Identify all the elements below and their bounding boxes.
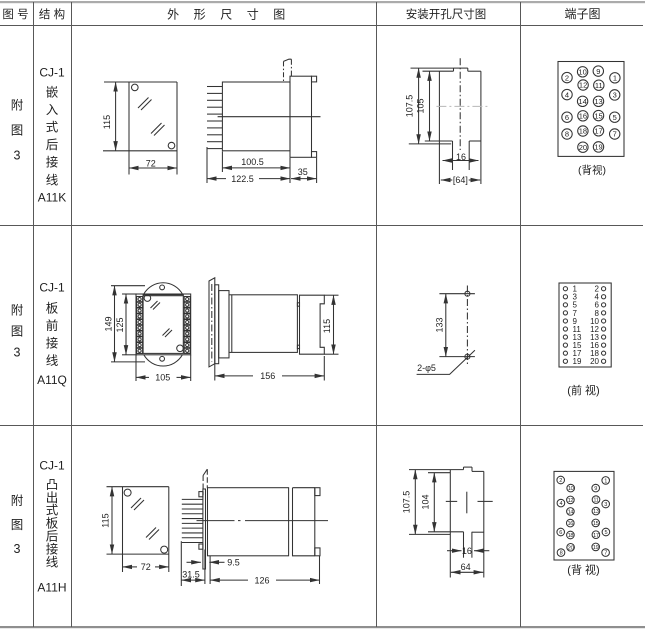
svg-text:3: 3: [14, 345, 21, 359]
svg-text:CJ-1: CJ-1: [39, 281, 65, 295]
svg-text:附: 附: [11, 303, 24, 317]
svg-text:115: 115: [322, 319, 332, 333]
svg-text:A11K: A11K: [38, 191, 66, 205]
svg-text:19: 19: [593, 545, 599, 551]
svg-text:图: 图: [11, 518, 24, 532]
svg-text:17: 17: [593, 533, 599, 539]
svg-text:3: 3: [604, 502, 607, 508]
svg-text:附: 附: [11, 98, 24, 112]
svg-text:19: 19: [594, 143, 602, 152]
svg-text:式: 式: [46, 504, 59, 518]
svg-text:图: 图: [11, 123, 24, 137]
svg-text:线: 线: [46, 555, 59, 569]
svg-text:104: 104: [421, 494, 431, 509]
svg-text:图 号: 图 号: [2, 8, 28, 21]
svg-text:3: 3: [613, 91, 617, 100]
svg-text:31.5: 31.5: [182, 570, 200, 580]
svg-text:后: 后: [46, 138, 59, 152]
svg-text:1: 1: [604, 479, 607, 485]
svg-text:1: 1: [613, 74, 617, 83]
svg-text:接: 接: [46, 155, 59, 170]
svg-text:15: 15: [593, 521, 599, 527]
svg-text:14: 14: [568, 510, 574, 516]
svg-text:7: 7: [613, 130, 617, 139]
svg-text:10: 10: [568, 486, 574, 492]
svg-text:35: 35: [298, 167, 308, 177]
svg-text:接: 接: [46, 335, 59, 350]
svg-text:结 构: 结 构: [39, 7, 65, 21]
svg-text:115: 115: [101, 513, 111, 527]
svg-text:2: 2: [559, 478, 562, 484]
svg-text:6: 6: [565, 113, 569, 122]
svg-text:133: 133: [435, 317, 445, 332]
svg-text:2: 2: [565, 73, 569, 82]
svg-text:8: 8: [560, 551, 563, 557]
svg-text:122.5: 122.5: [231, 174, 254, 184]
svg-text:前: 前: [46, 318, 59, 333]
svg-text:式: 式: [46, 120, 59, 134]
svg-text:3: 3: [14, 542, 21, 556]
svg-text:CJ-1: CJ-1: [39, 458, 65, 472]
svg-text:105: 105: [415, 98, 425, 113]
svg-text:10: 10: [578, 68, 586, 77]
svg-text:13: 13: [593, 509, 599, 515]
svg-text:16: 16: [456, 152, 466, 162]
svg-text:156: 156: [260, 371, 275, 381]
svg-text:11: 11: [595, 81, 603, 90]
svg-text:107.5: 107.5: [404, 95, 414, 118]
svg-text:4: 4: [559, 501, 562, 507]
svg-text:附: 附: [11, 494, 24, 508]
svg-text:16: 16: [579, 112, 587, 121]
svg-text:20: 20: [590, 357, 599, 366]
svg-text:72: 72: [146, 159, 156, 169]
svg-text:15: 15: [594, 111, 602, 120]
svg-text:14: 14: [578, 97, 586, 106]
svg-text:18: 18: [579, 127, 587, 136]
svg-text:接: 接: [46, 541, 59, 556]
svg-text:(前 视): (前 视): [567, 383, 599, 397]
svg-text:20: 20: [568, 545, 574, 551]
svg-text:板: 板: [46, 517, 59, 531]
svg-text:图: 图: [11, 324, 24, 338]
svg-text:A11Q: A11Q: [37, 373, 67, 387]
svg-text:9: 9: [596, 67, 600, 76]
svg-text:(背 视): (背 视): [567, 563, 599, 577]
svg-text:6: 6: [559, 530, 562, 536]
svg-text:12: 12: [568, 498, 574, 504]
svg-text:嵌: 嵌: [46, 85, 59, 99]
svg-text:[64]: [64]: [453, 175, 468, 185]
svg-text:凸: 凸: [46, 478, 59, 492]
svg-text:5: 5: [613, 113, 617, 122]
svg-text:(背视): (背视): [578, 163, 606, 176]
svg-text:4: 4: [565, 90, 569, 99]
svg-text:17: 17: [594, 127, 602, 136]
svg-text:20: 20: [579, 143, 587, 152]
svg-text:9.5: 9.5: [227, 557, 240, 567]
svg-text:115: 115: [102, 115, 112, 129]
svg-text:64: 64: [461, 562, 471, 572]
svg-text:端子图: 端子图: [564, 7, 600, 21]
svg-text:11: 11: [593, 498, 598, 504]
svg-text:12: 12: [579, 81, 587, 90]
svg-text:125: 125: [115, 317, 125, 332]
svg-text:安装开孔尺寸图: 安装开孔尺寸图: [406, 7, 487, 21]
svg-text:107.5: 107.5: [402, 491, 412, 514]
svg-text:126: 126: [254, 575, 269, 585]
svg-text:3: 3: [14, 148, 21, 162]
svg-text:后: 后: [46, 530, 59, 544]
svg-text:16: 16: [462, 546, 472, 556]
svg-text:7: 7: [604, 551, 607, 557]
svg-text:9: 9: [594, 486, 597, 492]
svg-text:149: 149: [103, 316, 113, 331]
svg-text:72: 72: [141, 562, 151, 572]
svg-text:16: 16: [567, 521, 573, 527]
svg-text:5: 5: [604, 530, 607, 536]
svg-text:18: 18: [568, 533, 574, 539]
svg-text:A11H: A11H: [37, 581, 66, 595]
svg-text:入: 入: [46, 103, 59, 117]
svg-text:13: 13: [594, 97, 602, 106]
svg-text:2-φ5: 2-φ5: [417, 363, 436, 373]
svg-text:105: 105: [155, 373, 170, 383]
svg-text:线: 线: [46, 173, 59, 187]
svg-text:100.5: 100.5: [241, 157, 264, 167]
svg-text:外 形 尺 寸 图: 外 形 尺 寸 图: [167, 7, 291, 21]
svg-text:19: 19: [573, 357, 582, 366]
svg-text:8: 8: [565, 130, 569, 139]
svg-text:线: 线: [46, 354, 59, 368]
svg-text:CJ-1: CJ-1: [39, 66, 65, 80]
svg-text:板: 板: [46, 301, 59, 315]
